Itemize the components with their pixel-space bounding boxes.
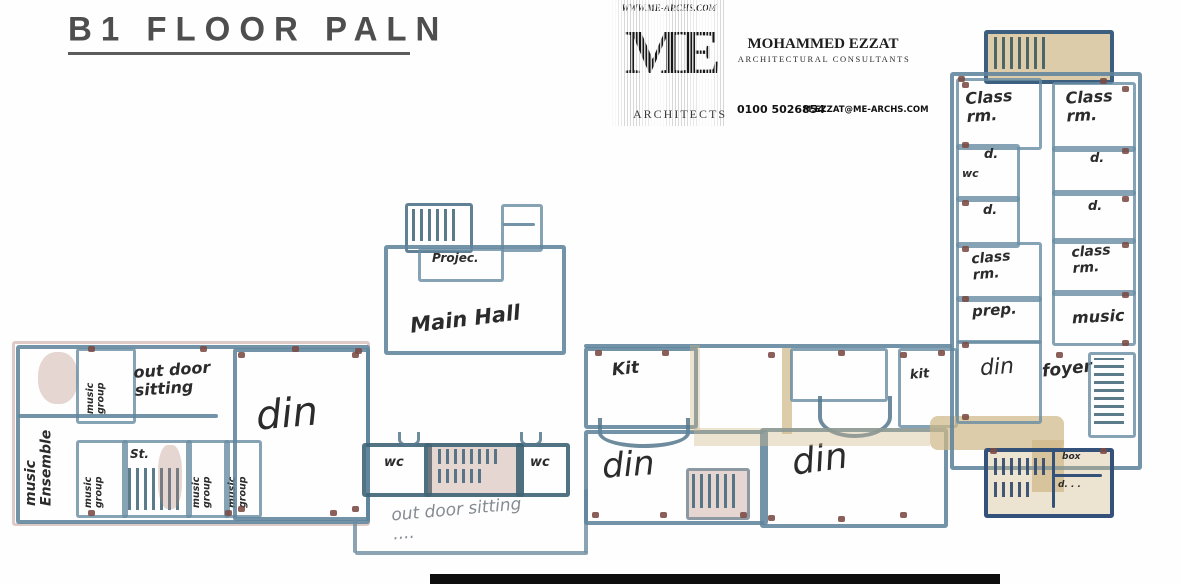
floor-plan-sheet: B1 FLOOR PALN WWW.ME-ARCHS.COM ME ARCHIT… — [0, 0, 1181, 584]
column-dot — [962, 246, 969, 252]
column-dot — [1100, 448, 1107, 454]
column-dot — [962, 414, 969, 420]
column-dot — [1122, 148, 1129, 154]
column-dot — [958, 76, 965, 82]
column-dot — [660, 512, 667, 518]
room-label-st: St. — [130, 448, 149, 461]
stair-hatch-service-top — [994, 458, 1046, 475]
door-swing-arc — [398, 432, 420, 447]
band-top-wall — [584, 344, 952, 348]
room-label-wc-left: wc — [384, 456, 404, 471]
watercolor-smudge — [158, 445, 182, 509]
service-divider — [1052, 450, 1055, 508]
title-underline — [68, 52, 410, 55]
pantry-room — [790, 348, 888, 402]
room-label-music-group-1: music group — [86, 352, 120, 414]
room-label-outdoor-sitting-lower: out door sitting .... — [391, 494, 544, 545]
room-label-box: box — [1062, 452, 1080, 462]
column-dot — [838, 350, 845, 356]
terrace-boundary — [353, 519, 357, 553]
scan-artifact-bar — [430, 574, 1000, 584]
small-room-divider — [503, 223, 535, 226]
logo-wordmark: ARCHITECTS — [630, 107, 730, 122]
room-label-kitchen-small: kit — [909, 367, 930, 383]
column-dot — [1122, 340, 1129, 346]
architect-email: M.EZZAT@ME-ARCHS.COM — [803, 105, 929, 115]
column-dot — [225, 510, 232, 516]
room-kitchen-left — [584, 347, 698, 429]
room-label-din-left: din — [254, 389, 320, 439]
room-label-d-4: d. — [1088, 200, 1102, 215]
column-dot — [768, 515, 775, 521]
column-dot — [962, 342, 969, 348]
room-label-prep: prep. — [971, 300, 1017, 320]
room-label-music-group-2: music group — [84, 446, 116, 508]
room-label-d-2: d. — [983, 204, 997, 219]
room-label-d-3: d. — [1090, 152, 1104, 167]
column-dot — [962, 82, 969, 88]
logo-monogram: ME — [624, 22, 718, 84]
stair-hatch-right-wing-top — [994, 37, 1050, 69]
room-label-projection: Projec. — [432, 252, 479, 265]
column-dot — [990, 448, 997, 454]
stair-hatch-main-hall — [412, 209, 460, 241]
column-dot — [938, 350, 945, 356]
column-dot — [1056, 352, 1063, 358]
room-label-music: music — [1072, 307, 1125, 328]
service-divider — [1054, 474, 1102, 477]
column-dot — [330, 510, 337, 516]
room-label-class-rm-4: class rm. — [1071, 242, 1129, 277]
column-dot — [662, 350, 669, 356]
column-dot — [1122, 292, 1129, 298]
column-dot — [352, 506, 359, 512]
column-dot — [1100, 78, 1107, 84]
column-dot — [1122, 86, 1129, 92]
room-label-music-group-3: music group — [192, 446, 220, 508]
column-dot — [1122, 242, 1129, 248]
corridor-wall — [18, 414, 218, 418]
stair-hatch-center-top — [438, 449, 498, 464]
room-label-din-wing: din — [979, 355, 1015, 382]
column-dot — [88, 510, 95, 516]
column-dot — [292, 346, 299, 352]
terrace-boundary — [355, 551, 588, 555]
room-label-music-ensemble: music Ensemble — [24, 388, 64, 506]
room-label-class-rm-2: Class rm. — [1065, 86, 1127, 125]
column-dot — [768, 352, 775, 358]
room-din-wing — [956, 340, 1042, 424]
column-dot — [238, 352, 245, 358]
column-dot — [238, 506, 245, 512]
room-label-wc-small: wc — [962, 168, 979, 180]
column-dot — [200, 346, 207, 352]
room-label-kitchen-left: Kit — [611, 359, 640, 381]
column-dot — [595, 350, 602, 356]
corridor-tan-band — [694, 428, 930, 446]
column-dot — [740, 512, 747, 518]
stair-hatch-foyer — [1094, 358, 1124, 424]
architect-tagline: ARCHITECTURAL CONSULTANTS — [726, 54, 922, 64]
column-dot — [352, 352, 359, 358]
stair-hatch-center-bottom — [438, 469, 484, 483]
room-label-class-rm-3: class rm. — [971, 248, 1032, 284]
room-label-d-small: d. . . — [1058, 480, 1081, 490]
column-dot — [900, 352, 907, 358]
stair-hatch-din-mid — [692, 474, 736, 508]
column-dot — [962, 142, 969, 148]
column-dot — [838, 516, 845, 522]
column-dot — [900, 512, 907, 518]
column-dot — [962, 296, 969, 302]
column-dot — [1122, 196, 1129, 202]
room-label-wc-right: wc — [530, 456, 550, 471]
room-label-d-1: d. — [984, 148, 998, 163]
architect-name: MOHAMMED EZZAT — [733, 36, 913, 53]
stair-hatch-service-bottom — [994, 482, 1034, 497]
logo-website: WWW.ME-ARCHS.COM — [610, 3, 728, 13]
page-title: B1 FLOOR PALN — [68, 9, 448, 49]
corridor-tan-band — [690, 345, 700, 431]
room-label-class-rm-1: Class rm. — [965, 86, 1029, 126]
room-label-din-mid: din — [601, 444, 656, 486]
column-dot — [88, 346, 95, 352]
column-dot — [962, 200, 969, 206]
door-swing-arc — [520, 432, 542, 447]
column-dot — [592, 512, 599, 518]
